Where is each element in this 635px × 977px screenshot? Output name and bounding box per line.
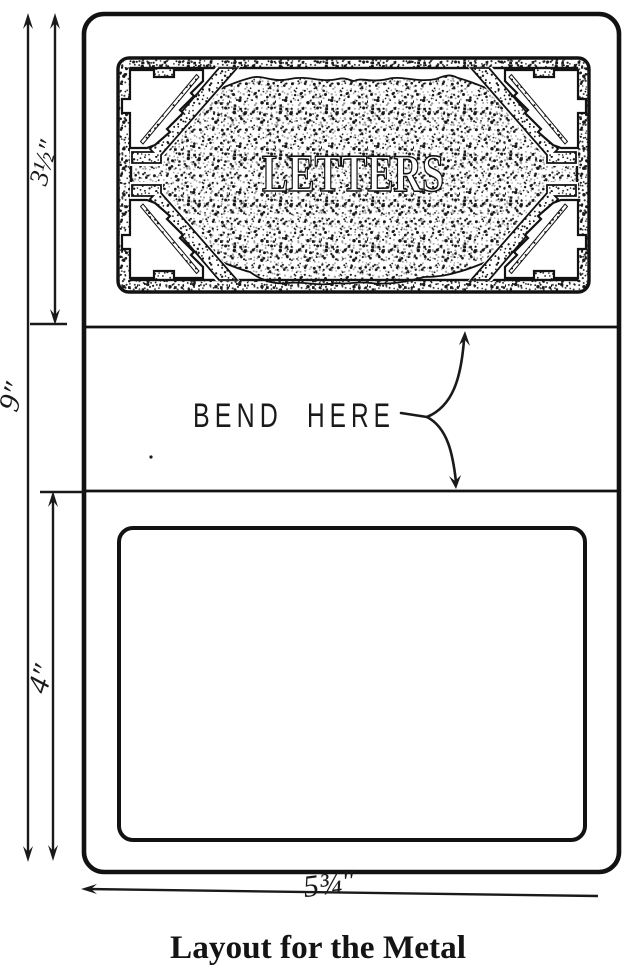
svg-text:Layout for the Metal: Layout for the Metal xyxy=(170,930,466,966)
svg-text:BEND: BEND xyxy=(193,397,283,435)
svg-text:LETTERS: LETTERS xyxy=(262,145,444,203)
svg-text:5¾″: 5¾″ xyxy=(301,863,358,904)
svg-text:HERE: HERE xyxy=(307,397,395,435)
